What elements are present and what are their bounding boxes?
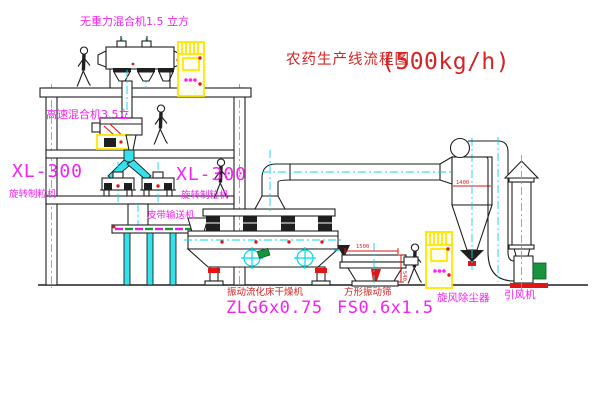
label-dryer-name: 振动流化床干燥机 bbox=[227, 286, 304, 298]
dim-screen-height: 540 bbox=[401, 271, 407, 281]
gravity-free-mixer bbox=[98, 36, 190, 88]
exhaust-duct bbox=[255, 150, 455, 212]
belt-conveyor-machine bbox=[112, 225, 196, 285]
fan-base bbox=[510, 283, 548, 288]
label-screen-name: 方形振动筛 bbox=[344, 286, 392, 298]
label-high-speed-mixer: 高速混合机3.5立 bbox=[46, 107, 130, 121]
middle-slab bbox=[46, 150, 234, 158]
high-speed-mixer bbox=[92, 118, 142, 150]
control-cabinet-top bbox=[178, 42, 204, 96]
dim-cyclone: 1400 bbox=[456, 180, 469, 186]
worker-middle-floor bbox=[154, 105, 168, 145]
label-screen-model: FS0.6x1.5 bbox=[337, 298, 434, 318]
fluid-bed-dryer-machine bbox=[184, 209, 342, 285]
page-title-rate: (500kg/h) bbox=[381, 49, 510, 75]
roof-slab bbox=[40, 88, 251, 97]
label-granulator-right-name: 旋转制粒机 bbox=[181, 189, 229, 201]
elbow-flange bbox=[451, 139, 470, 158]
label-belt-conveyor: 皮带输送机 bbox=[147, 209, 195, 221]
fan-motor bbox=[533, 263, 546, 279]
label-granulator-left-name: 旋转制粒机 bbox=[9, 188, 57, 200]
label-granulator-right-model: XL-300 bbox=[176, 164, 247, 185]
cyclone-separator-machine bbox=[451, 138, 493, 270]
label-granulator-left-model: XL-300 bbox=[12, 161, 83, 182]
flow-diagram: 无重力混合机1.5 立方 农药生产线流程图 (500kg/h) 高速混合机3.5… bbox=[0, 0, 600, 403]
dim-screen-width: 1500 bbox=[356, 244, 369, 250]
label-gravity-mixer: 无重力混合机1.5 立方 bbox=[80, 14, 189, 28]
label-cyclone: 旋风除尘器 bbox=[437, 291, 490, 304]
control-cabinet-right bbox=[426, 232, 452, 288]
indicator-lights bbox=[433, 269, 446, 273]
cad-canvas: 无重力混合机1.5 立方 农药生产线流程图 (500kg/h) 高速混合机3.5… bbox=[0, 0, 600, 403]
label-dryer-model: ZLG6x0.75 bbox=[226, 298, 323, 318]
worker-roof bbox=[77, 47, 91, 87]
label-fan: 引风机 bbox=[504, 288, 536, 301]
induced-draft-fan-machine bbox=[510, 248, 548, 288]
vibrating-screen-machine bbox=[334, 243, 418, 290]
discharge-duct bbox=[128, 204, 148, 228]
screen-outlet bbox=[404, 257, 418, 265]
indicator-lights bbox=[184, 78, 197, 82]
